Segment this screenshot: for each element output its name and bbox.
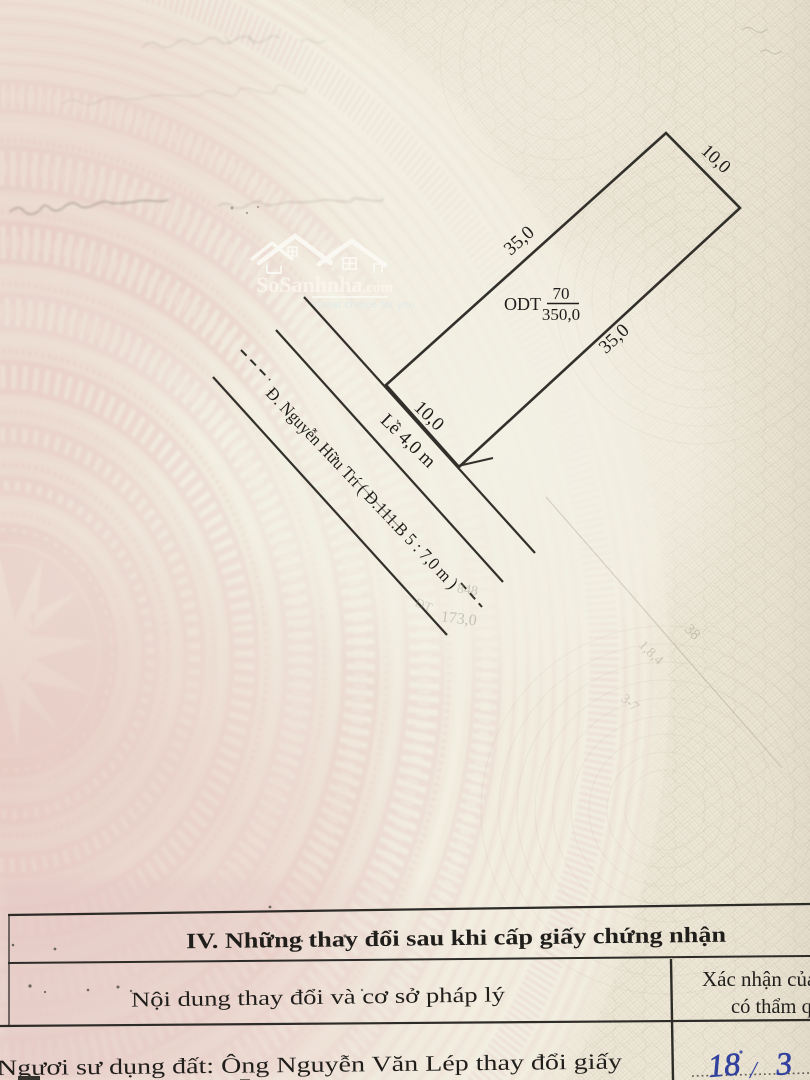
svg-text:350,0: 350,0 <box>542 305 580 324</box>
svg-text:ODT: ODT <box>504 294 541 314</box>
svg-text:70: 70 <box>553 284 570 303</box>
svg-text:Xác nhận của: Xác nhận của <box>702 967 810 991</box>
svg-text:có thẩm qu: có thẩm qu <box>731 996 810 1018</box>
svg-text:Great choice for you: Great choice for you <box>313 299 416 311</box>
svg-text:3: 3 <box>773 1045 793 1080</box>
svg-text:18: 18 <box>706 1045 741 1080</box>
